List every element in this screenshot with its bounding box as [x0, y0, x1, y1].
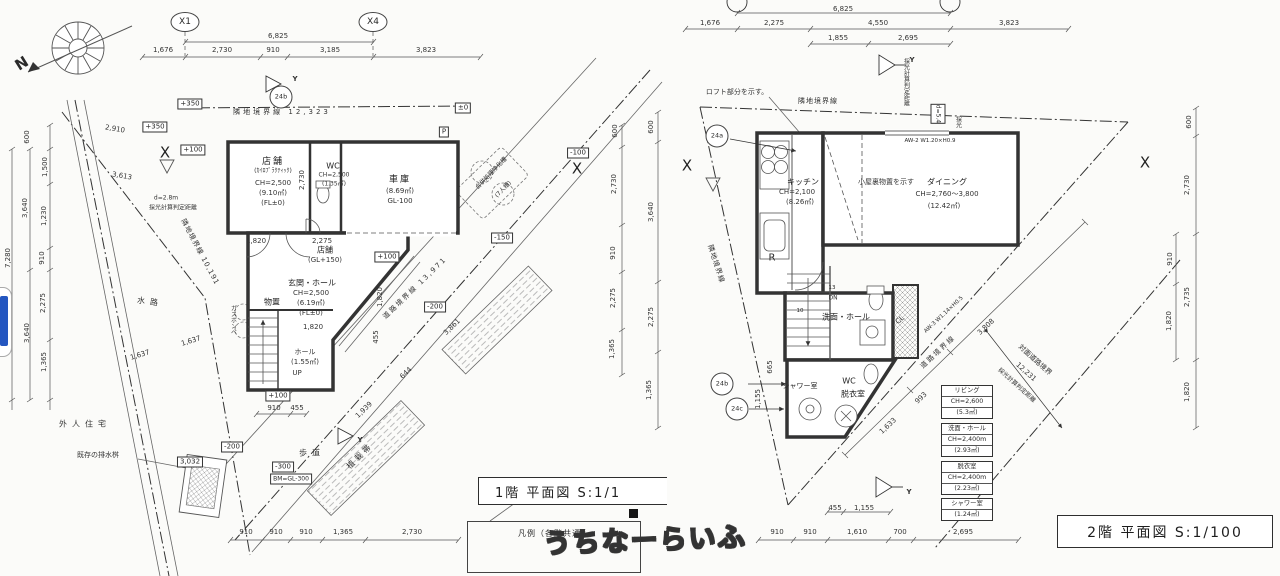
dim-label: 2,695	[953, 528, 973, 536]
room-ch: CH=2,760〜3,800	[915, 190, 978, 198]
dim-label: 1,855	[828, 34, 848, 42]
level-badge: -300	[272, 462, 294, 473]
info-room-name: 洗面・ホール	[942, 424, 992, 434]
dim-label: 600	[1185, 115, 1193, 128]
dim-label: 665	[766, 360, 774, 373]
x-mark: X	[572, 160, 582, 177]
room-label-garage: 車庫	[389, 175, 411, 185]
up-label: UP	[292, 369, 301, 377]
room-label-genkan: 玄関・ホール	[288, 278, 336, 287]
room-gl: GL-100	[387, 197, 412, 205]
info-table-shower: シャワー室 (1.24㎡)	[941, 498, 993, 521]
room-ch: CH=2,500	[255, 179, 291, 187]
dim-label: 3,640	[21, 198, 29, 218]
info-room-name: シャワー室	[942, 499, 992, 509]
room-area: (8.69㎡)	[386, 187, 414, 195]
room-label-monooki: 物置	[264, 297, 280, 306]
dim-label: 2,275	[312, 237, 332, 245]
dim-label: 2,275	[764, 19, 784, 27]
y-section-label: Y	[292, 75, 297, 83]
level-badge: -200	[221, 442, 243, 453]
dim-label: 600	[647, 120, 655, 133]
info-room-area: (1.24㎡)	[942, 509, 992, 520]
dim-label: 1,365	[333, 528, 353, 536]
window-label: AW-2 W1.20×H0.9	[904, 138, 955, 144]
plan1-title: 1階 平面図 S:1/1	[478, 477, 667, 505]
dim-label: 1,365	[40, 352, 48, 372]
black-square-mark	[629, 509, 638, 518]
room-ch: CH=2,100	[779, 188, 815, 196]
room-ch: CH=2,500	[293, 289, 329, 297]
room-label-kitchen: キッチン	[787, 177, 819, 186]
room-area: (9.10㎡)	[259, 189, 287, 197]
dim-label: 6,825	[268, 32, 288, 40]
dim-label: 2,275	[609, 288, 617, 308]
dim-label: 455	[290, 404, 303, 412]
drain-label: 既存の排水桝	[77, 451, 119, 459]
dim-label: 2,695	[898, 34, 918, 42]
dim-label: 910	[266, 46, 279, 54]
vent-mark: 24a	[706, 125, 729, 148]
info-table-senmen: 洗面・ホール CH=2,400m (2.93㎡)	[941, 423, 993, 457]
north-compass	[28, 22, 132, 74]
gas-label: ガスボンベ	[229, 305, 236, 335]
dim-label: 910	[609, 246, 617, 259]
dim-label: 910	[1166, 252, 1174, 265]
dim-label: 2,730	[1183, 175, 1191, 195]
level-badge: +350	[177, 99, 202, 110]
dim-label: 2,735	[1183, 287, 1191, 307]
vent-mark: 24c	[726, 398, 749, 421]
x-mark: X	[160, 144, 170, 161]
loft-note: ロフト部分を示す。	[706, 88, 768, 96]
room-area: (8.26㎡)	[786, 198, 814, 206]
room-area: (6.19㎡)	[297, 299, 325, 307]
room-area: (1.55㎡)	[291, 358, 319, 366]
dim-label: 2,730	[610, 174, 618, 194]
dim-label: 1,820	[246, 237, 266, 245]
level-badge: 3,032	[177, 457, 203, 468]
room-label-wc: WC	[326, 161, 340, 170]
level-badge: -200	[424, 302, 446, 313]
info-table-living: リビング CH=2,600 (5.3㎡)	[941, 385, 993, 419]
room-ch: CH=2,500	[319, 173, 350, 180]
info-table-datsui: 脱衣室 CH=2,400m (2.23㎡)	[941, 461, 993, 495]
room-label-hall: ホール	[295, 348, 316, 356]
daylight-label: 採光計算判定距離	[149, 206, 197, 213]
room-fl: (FL±0)	[299, 309, 323, 317]
level-badge: ±0	[455, 103, 471, 114]
dim-label: 910	[803, 528, 816, 536]
room-area: (1.35㎡)	[322, 182, 346, 189]
d54-badge: d=5.4	[931, 104, 946, 124]
y-section-label: Y	[357, 436, 362, 444]
stair-number: 10	[797, 308, 804, 314]
dim-label: 2,730	[402, 528, 422, 536]
level-badge: -100	[567, 148, 589, 159]
dim-label: 910	[267, 404, 280, 412]
dim-label: 7,280	[4, 248, 12, 268]
dim-label: 910	[299, 528, 312, 536]
dim-label: 1,500	[41, 157, 49, 177]
dim-label: 3,640	[647, 202, 655, 222]
dim-label: 1,820	[1183, 382, 1191, 402]
dim-label: 1,155	[754, 389, 762, 409]
floorplan-sheet: N X1 X4 6,825 1,676 2,730 910 3,185 3,82…	[0, 0, 1280, 576]
info-room-ch: CH=2,400m	[942, 434, 992, 445]
daylight-short-label: 採光	[954, 116, 961, 128]
parking-badge: P	[439, 127, 449, 138]
dim-label: 700	[893, 528, 906, 536]
room-fl: (FL±0)	[261, 199, 285, 207]
dim-label: 1,365	[608, 339, 616, 359]
room-label-shower: シャワー室	[783, 382, 818, 390]
dim-label: 1,230	[40, 206, 48, 226]
dim-label: 3,185	[320, 46, 340, 54]
info-room-name: 脱衣室	[942, 462, 992, 472]
dim-label: 4,550	[868, 19, 888, 27]
dim-label: 1,820	[376, 287, 384, 307]
dim-label: 3,640	[23, 323, 31, 343]
dim-label: 2,730	[212, 46, 232, 54]
dim-label: 1,676	[153, 46, 173, 54]
dim-label: 455	[372, 330, 380, 343]
room-label-dining: ダイニング	[927, 177, 967, 186]
level-badge: +100	[265, 391, 290, 402]
x-mark: X	[682, 157, 692, 174]
refrigerator-label: R	[769, 252, 776, 264]
dim-label: 3,823	[416, 46, 436, 54]
daylight-vertical-label: 採光計算判定距離	[902, 58, 909, 106]
grid-bubble-x1: X1	[171, 12, 200, 32]
dim-label: 1,676	[700, 19, 720, 27]
room-label-senmen: 洗面・ホール	[822, 312, 870, 321]
boundary-label-top: 隣地境界線	[798, 97, 838, 105]
room-gl: (GL+150)	[308, 256, 342, 264]
info-room-area: (2.93㎡)	[942, 445, 992, 456]
level-badge: -150	[491, 233, 513, 244]
room-label-tenpo: 店舗	[262, 157, 284, 167]
dn-label: DN	[828, 296, 837, 303]
info-room-area: (5.3㎡)	[942, 407, 992, 418]
dim-label: 1,610	[847, 528, 867, 536]
grid-bubble-x4: X4	[359, 12, 388, 32]
dim-label: 1,820	[303, 323, 323, 331]
y-section-label: Y	[909, 56, 914, 64]
info-room-ch: CH=2,400m	[942, 472, 992, 483]
info-room-name: リビング	[942, 386, 992, 396]
vent-mark-24b: 24b	[270, 86, 293, 109]
stair-number: 13	[829, 285, 836, 291]
room-area: (12.42㎡)	[928, 202, 961, 210]
room-label-wc: WC	[842, 376, 856, 385]
dim-label: 910	[38, 251, 46, 264]
x-mark: X	[1140, 154, 1150, 171]
y-section-label: Y	[906, 488, 911, 496]
dim-label: 6,825	[833, 5, 853, 13]
dim-label: 1,155	[854, 504, 874, 512]
vent-mark: 24b	[711, 373, 734, 396]
watermark: うちなーらいふ	[543, 515, 747, 561]
dim-label: 1,365	[645, 380, 653, 400]
dim-label: 600	[23, 130, 31, 143]
room-note: (ｶｲﾛﾌﾟﾗｸﾃｨｯｸ)	[254, 169, 292, 176]
dim-label: 2,275	[39, 293, 47, 313]
dim-label: 1,820	[1165, 311, 1173, 331]
dim-label: 2,275	[647, 307, 655, 327]
dim-label: 455	[828, 504, 841, 512]
level-badge: +100	[180, 145, 205, 156]
info-room-ch: CH=2,600	[942, 396, 992, 407]
benchmark-badge: BM=GL-300	[270, 474, 312, 485]
side-tab[interactable]	[0, 296, 8, 346]
room-label-datsui: 脱衣室	[841, 389, 865, 398]
dim-label: 600	[611, 124, 619, 137]
neighbor-label: 外人住宅	[59, 419, 111, 428]
dim-label: 910	[269, 528, 282, 536]
info-room-area: (2.23㎡)	[942, 483, 992, 494]
boundary-label-top: 隣地境界線 12,323	[233, 108, 331, 116]
dim-label: 910	[770, 528, 783, 536]
sidewalk-label: 歩道	[299, 448, 325, 457]
room-label-tenpo2: 店舗	[317, 245, 333, 254]
plan2-title: 2階 平面図 S:1/100	[1057, 515, 1273, 548]
level-badge: +350	[142, 122, 167, 133]
dim-label: 3,823	[999, 19, 1019, 27]
dim-label: 910	[239, 528, 252, 536]
level-badge: +100	[374, 252, 399, 263]
daylight-d-label: d=2.8m	[154, 196, 178, 203]
dim-label: 2,730	[298, 170, 306, 190]
attic-note: 小屋裏物置を示す	[858, 178, 914, 186]
